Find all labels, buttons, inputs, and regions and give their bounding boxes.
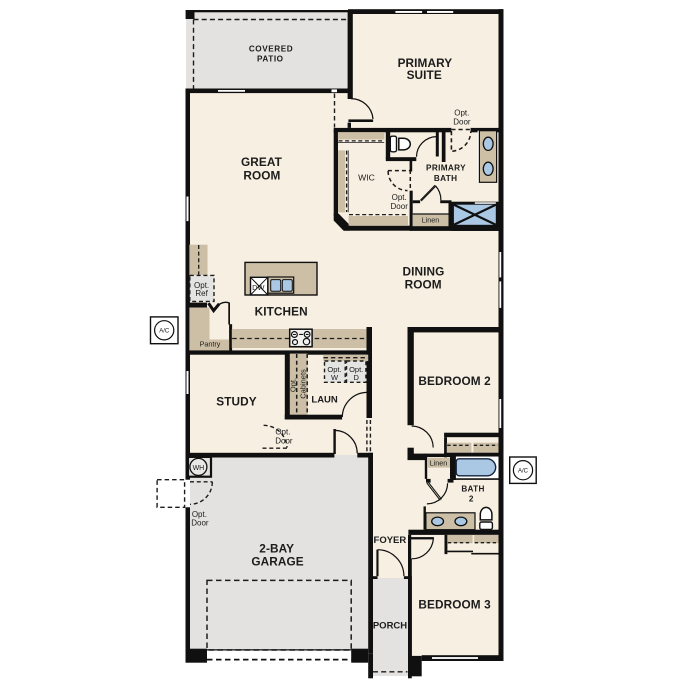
svg-text:BATH: BATH — [434, 174, 458, 183]
svg-text:ROOM: ROOM — [405, 278, 442, 292]
svg-text:COVERED: COVERED — [249, 44, 293, 53]
svg-text:ROOM: ROOM — [243, 169, 280, 183]
svg-text:A/C: A/C — [518, 469, 529, 475]
svg-text:SUITE: SUITE — [407, 68, 442, 82]
svg-text:GARAGE: GARAGE — [251, 554, 303, 568]
svg-text:LAUN: LAUN — [311, 395, 338, 406]
svg-text:BEDROOM 3: BEDROOM 3 — [418, 597, 491, 611]
svg-text:Pantry: Pantry — [200, 339, 221, 348]
svg-text:STUDY: STUDY — [216, 395, 257, 409]
svg-text:A/C: A/C — [159, 329, 170, 335]
svg-text:Linen: Linen — [430, 459, 448, 468]
svg-text:Opt.: Opt. — [454, 109, 469, 118]
svg-text:Opt.: Opt. — [275, 427, 290, 436]
svg-text:D: D — [353, 373, 359, 382]
svg-text:DINING: DINING — [402, 264, 444, 278]
svg-text:Opt.: Opt. — [289, 378, 298, 392]
svg-text:Ref: Ref — [195, 289, 208, 298]
svg-text:KITCHEN: KITCHEN — [255, 304, 308, 318]
svg-text:BATH: BATH — [461, 484, 484, 493]
svg-text:Door: Door — [453, 118, 471, 127]
svg-text:2: 2 — [469, 495, 474, 504]
svg-text:Linen: Linen — [422, 216, 440, 225]
svg-text:Cabinets: Cabinets — [298, 369, 307, 399]
svg-text:WH: WH — [193, 465, 205, 472]
svg-text:PORCH: PORCH — [373, 621, 407, 632]
svg-text:PRIMARY: PRIMARY — [426, 163, 466, 172]
svg-text:BEDROOM 2: BEDROOM 2 — [418, 374, 491, 388]
svg-text:WIC: WIC — [358, 173, 375, 183]
svg-text:PATIO: PATIO — [257, 54, 284, 63]
svg-text:Opt.: Opt. — [392, 193, 407, 202]
svg-text:Door: Door — [191, 518, 209, 527]
svg-text:DW: DW — [252, 283, 264, 292]
svg-text:2-BAY: 2-BAY — [259, 541, 294, 555]
svg-text:GREAT: GREAT — [241, 155, 283, 169]
svg-text:Door: Door — [391, 202, 409, 211]
svg-text:W: W — [331, 373, 339, 382]
svg-text:Door: Door — [275, 437, 293, 446]
svg-text:FOYER: FOYER — [374, 535, 407, 546]
